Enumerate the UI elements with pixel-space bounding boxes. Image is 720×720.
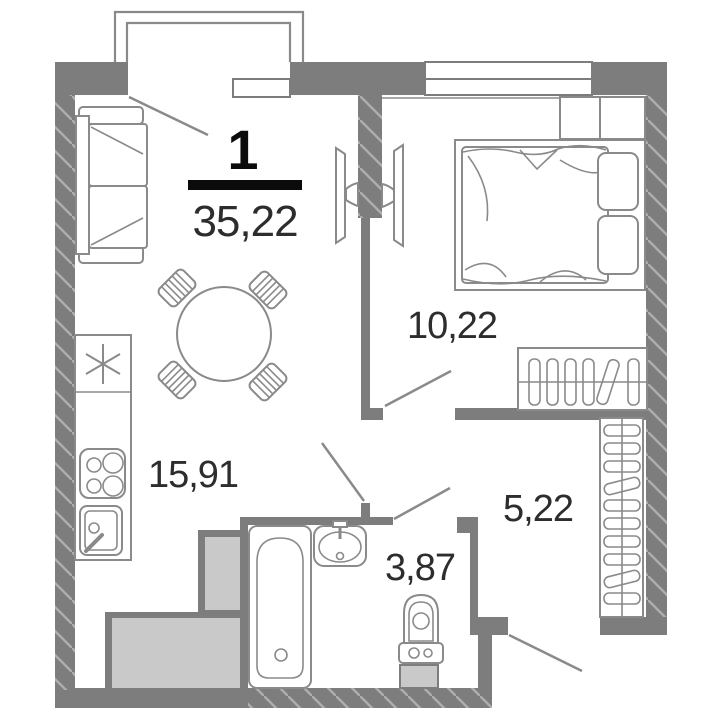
wall-top-a [55, 62, 128, 95]
bathroom-door-swing-icon [394, 488, 450, 519]
toilet-tank [399, 643, 443, 663]
tv-screen [336, 148, 345, 243]
entry-wall-stub [470, 617, 508, 635]
table-top [177, 287, 271, 381]
pillow-icon [598, 153, 638, 210]
dining-table-icon [156, 267, 288, 402]
wall-top-c [592, 62, 667, 95]
bedroom-door-jamb [361, 408, 383, 420]
balcony-window-icon [233, 79, 290, 97]
stove-icon [80, 449, 125, 498]
balcony-inner-rail [127, 23, 290, 62]
wall-partition-thin [361, 218, 370, 408]
bedroom-door-swing-icon [385, 371, 451, 406]
bathtub-icon [249, 526, 311, 688]
total-area-label: 35,22 [192, 197, 297, 246]
washbasin-icon [314, 521, 366, 566]
closet-icon [600, 418, 643, 617]
wall-bathroom-top [240, 517, 393, 525]
balcony-outer-rail [115, 12, 303, 62]
bathroom-area-label: 3,87 [385, 547, 455, 589]
duct-upper-fill [205, 537, 240, 610]
bathroom-right-jamb [457, 517, 478, 533]
toilet-duct [400, 665, 438, 688]
rooms-count-label: 1 [227, 118, 258, 181]
nightstand-icon [560, 97, 645, 139]
wall-bathroom-right [470, 533, 478, 617]
bed-icon [455, 140, 645, 290]
entry-side-wall [478, 635, 492, 688]
tv-mount [346, 183, 358, 206]
bedroom-area-label: 10,22 [407, 305, 497, 347]
wardrobe-icon [518, 348, 647, 410]
sofa-icon [76, 107, 147, 263]
wall-bottom-hatch [248, 688, 492, 708]
kitchen-counter [75, 335, 131, 560]
kitchen-sink-icon [80, 506, 122, 555]
corridor-jamb [361, 503, 370, 517]
closet-base-wall [600, 617, 646, 635]
floor-plan-svg: 1 35,22 10,22 15,91 5,22 3,87 [0, 0, 720, 720]
kitchen-living-area-label: 15,91 [148, 454, 238, 496]
pillow-icon [598, 216, 638, 274]
balcony [115, 12, 303, 62]
wall-left-hatch [55, 95, 75, 690]
tv-icon [336, 148, 358, 243]
wall-top-b [290, 62, 425, 95]
living-door-swing-icon [322, 443, 364, 501]
tv-icon [382, 145, 403, 246]
entry-door-swing-icon [509, 635, 582, 671]
apartment-title: 1 35,22 [188, 118, 302, 246]
tv-screen [394, 145, 403, 246]
duct-lower-fill [112, 618, 240, 688]
tv-mount [382, 184, 394, 207]
toilet-icon [399, 595, 443, 688]
sofa-cushion [89, 124, 147, 186]
floor-plan: 1 35,22 10,22 15,91 5,22 3,87 [0, 0, 720, 720]
basin-faucet [333, 521, 347, 527]
area-underline [188, 180, 302, 190]
wall-right-hatch [646, 95, 667, 617]
sofa-cushion [89, 186, 147, 248]
wall-partition-hatch [358, 95, 382, 218]
sofa-backrest [76, 116, 89, 254]
hallway-area-label: 5,22 [503, 488, 573, 530]
